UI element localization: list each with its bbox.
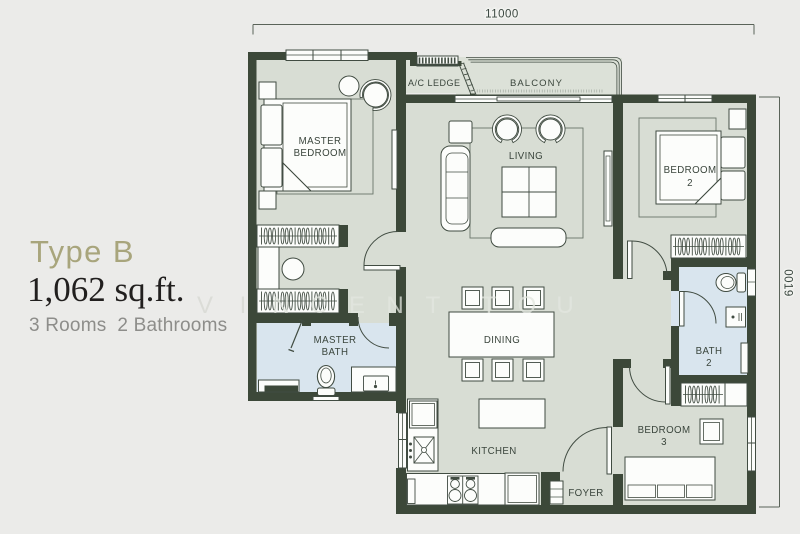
svg-text:Type B: Type B bbox=[30, 234, 135, 269]
svg-text:BATH: BATH bbox=[322, 347, 349, 358]
svg-text:3: 3 bbox=[661, 437, 667, 448]
svg-text:1,062 sq.ft.: 1,062 sq.ft. bbox=[27, 270, 185, 309]
svg-text:V: V bbox=[197, 292, 213, 319]
svg-text:BEDROOM: BEDROOM bbox=[294, 148, 347, 159]
svg-text:11000: 11000 bbox=[485, 9, 519, 21]
svg-text:KITCHEN: KITCHEN bbox=[471, 446, 516, 457]
svg-text:C: C bbox=[310, 292, 327, 319]
svg-text:BATH: BATH bbox=[696, 346, 723, 357]
svg-text:T: T bbox=[426, 292, 441, 319]
svg-text:BEDROOM: BEDROOM bbox=[664, 165, 717, 176]
svg-text:0019: 0019 bbox=[782, 269, 794, 297]
svg-text:N: N bbox=[386, 292, 403, 319]
svg-text:N: N bbox=[272, 292, 289, 319]
svg-text:I: I bbox=[240, 292, 247, 319]
svg-text:LIVING: LIVING bbox=[509, 151, 543, 162]
svg-text:BALCONY: BALCONY bbox=[510, 78, 563, 89]
svg-text:FOYER: FOYER bbox=[568, 488, 603, 499]
svg-text:U: U bbox=[556, 292, 573, 319]
svg-text:A/C LEDGE: A/C LEDGE bbox=[408, 78, 461, 88]
svg-text:E: E bbox=[349, 292, 365, 319]
svg-text:2: 2 bbox=[706, 358, 712, 369]
svg-text:T: T bbox=[482, 292, 497, 319]
svg-text:BEDROOM: BEDROOM bbox=[638, 425, 691, 436]
svg-text:MASTER: MASTER bbox=[314, 335, 357, 346]
svg-text:MASTER: MASTER bbox=[299, 136, 342, 147]
svg-text:2: 2 bbox=[687, 178, 693, 189]
svg-text:DINING: DINING bbox=[484, 335, 520, 346]
svg-text:O: O bbox=[518, 292, 537, 319]
